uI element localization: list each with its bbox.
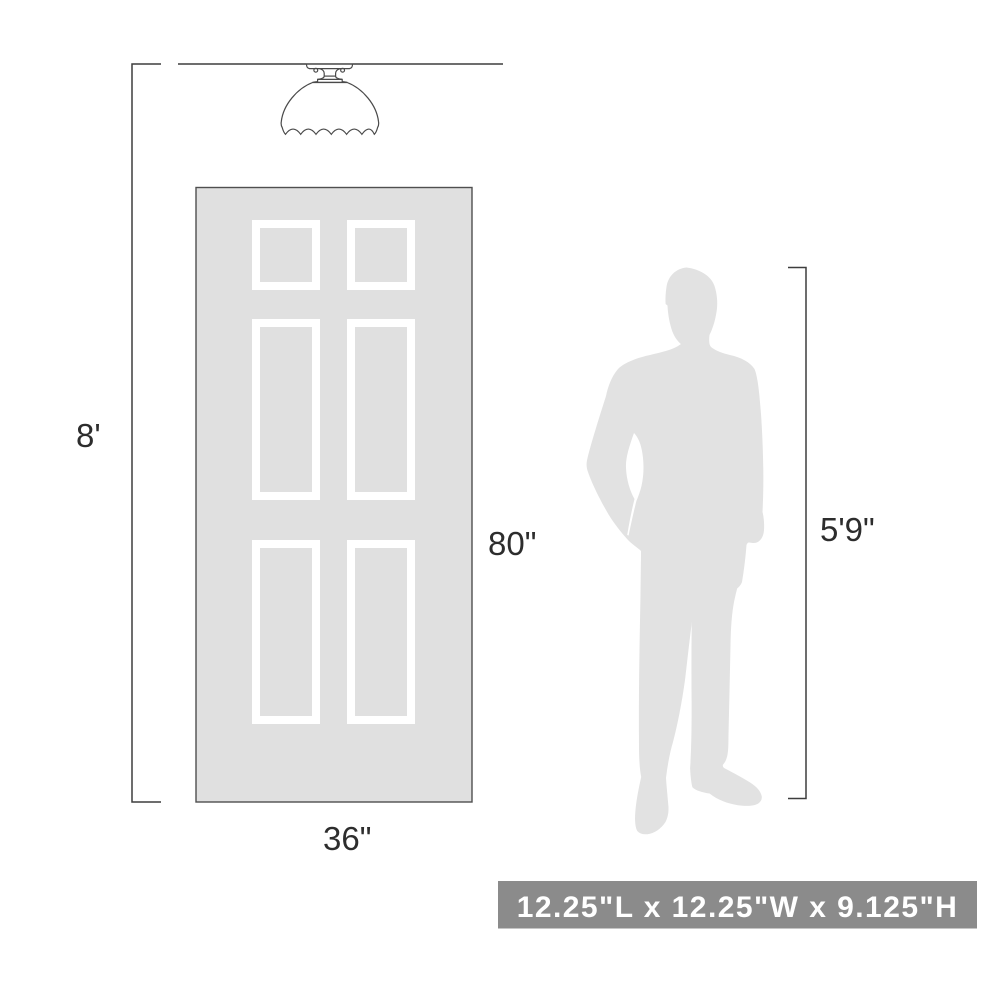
svg-text:80": 80" (488, 525, 536, 562)
svg-text:12.25"L x 12.25"W x 9.125"H: 12.25"L x 12.25"W x 9.125"H (517, 891, 959, 924)
svg-text:36": 36" (323, 820, 371, 857)
svg-text:5'9": 5'9" (820, 511, 875, 548)
svg-text:8': 8' (76, 417, 101, 454)
